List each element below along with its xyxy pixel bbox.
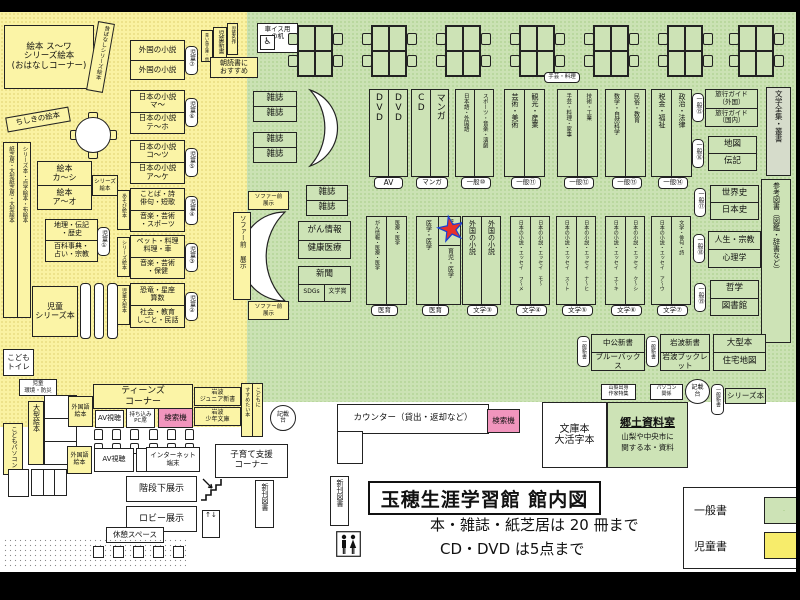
cd-dvd-limit-note: CD・DVD は5点まで bbox=[440, 538, 584, 559]
bungaku5-badge: 文学⑤ bbox=[562, 305, 593, 316]
ippan16-badge: 一般⑯ bbox=[692, 139, 704, 168]
bungaku7-badge: 文学⑦ bbox=[657, 305, 688, 316]
table-2 bbox=[362, 25, 416, 77]
kyukei-area bbox=[3, 538, 186, 568]
ippan-shinsho-badge-2: 一般新書 bbox=[646, 336, 659, 367]
shugei-tag: 手芸・料理 bbox=[544, 72, 580, 83]
jido4-badge: 児童④ bbox=[185, 196, 198, 225]
pc-kankei-tag: パソコン関係 bbox=[650, 384, 683, 400]
gaikokugo-ehon-1: 外国語絵本 bbox=[68, 396, 93, 427]
kosodate-corner: 子育て支援コーナー bbox=[215, 444, 288, 478]
kodomo-pc: こどもパソコン bbox=[3, 423, 23, 475]
letterbox-bottom bbox=[0, 572, 800, 600]
table-5 bbox=[584, 25, 638, 77]
round-table bbox=[70, 112, 116, 158]
legend-general-label: 一般書 bbox=[694, 502, 727, 518]
ippan18-badge: 一般⑱ bbox=[693, 234, 705, 263]
series-bon: シリーズ本 bbox=[725, 388, 766, 404]
manga-badge: マンガ bbox=[416, 177, 448, 189]
av-shicho-2: AV視聴 bbox=[94, 448, 134, 472]
ippan10-badge: 一般⑩ bbox=[461, 177, 491, 189]
mochikomi-pc: 持ち込みPC席 bbox=[126, 408, 155, 428]
chizu-denki: 地図伝記 bbox=[708, 136, 757, 171]
legend-row-children: 児童書 bbox=[694, 532, 800, 559]
sofa-tenji-1: ソファー前展示 bbox=[248, 191, 289, 210]
ippan14-badge: 一般⑭ bbox=[658, 177, 688, 189]
ogata-ehon-v: 大型絵本 bbox=[28, 401, 44, 465]
nihon-au-shelf: 日本の小説・エッセイ ア〜ウ文学・俳句・詩 bbox=[651, 216, 691, 305]
series-kamishibai-shelf: 紙芝居・大型紙芝居・大型絵本シリーズ本・点字絵本・布絵本 bbox=[3, 142, 31, 318]
kisaidai-1: 記載台 bbox=[685, 379, 710, 404]
geijutsu-kanko-shelf: 芸術・美術観光・産業 bbox=[504, 89, 545, 177]
sofa-tenji-v: ソファー前 展示 bbox=[233, 212, 251, 300]
series-ehon-2: シリーズ絵本 bbox=[117, 237, 130, 277]
shimbun-sdgs: 新聞SDGs文学賞 bbox=[298, 266, 351, 302]
shugei-gijutsu-shelf: 手芸・料理・家事技術・工業 bbox=[557, 89, 598, 177]
chuko-bluebacks: 中公新書ブルーバックス bbox=[591, 334, 645, 371]
nihon-fume-shelf: 日本の小説・エッセイ フ〜メ日本の小説・エッセイ モ〜 bbox=[510, 216, 550, 305]
shinkan-tosho-1: 新刊図書 bbox=[255, 480, 274, 528]
ogata-jutaku: 大型本住宅地図 bbox=[713, 334, 766, 371]
table-6 bbox=[658, 25, 712, 77]
iwanami-junior: 岩波ジュニア新書 bbox=[194, 387, 241, 406]
map-title: 玉穂生涯学習館 館内図 bbox=[368, 481, 601, 515]
gaikokugo-ehon-2: 外国語絵本 bbox=[67, 446, 92, 474]
slots-a bbox=[80, 283, 118, 339]
stairs-icon bbox=[199, 475, 223, 501]
jido1-badge: 児童① bbox=[97, 227, 110, 256]
shinkan-tosho-2: 新刊図書 bbox=[330, 476, 349, 526]
bungaku4-badge: 文学④ bbox=[516, 305, 547, 316]
sekaishi-nihonshi: 世界史日本史 bbox=[710, 185, 759, 220]
jido7-badge: 児童⑦ bbox=[185, 46, 198, 75]
table-4 bbox=[510, 25, 564, 77]
table-7 bbox=[729, 25, 783, 77]
elevator-icon: ↑↓ bbox=[202, 510, 220, 538]
jido5-badge: 児童⑤ bbox=[185, 148, 198, 177]
asobi-ehon: あそび絵本 bbox=[117, 190, 130, 230]
tetsugaku-toshokan: 哲学図書館 bbox=[710, 280, 759, 316]
jido6-badge: 児童⑥ bbox=[185, 98, 198, 127]
chiri-hyakka: 地理・伝記 ・歴史百科事典・ 占い・宗教 bbox=[45, 219, 98, 262]
iiku-badge-2: 医育 bbox=[422, 305, 449, 316]
gan-iryo-shelf: がん情報・医療・医学医療・医学 bbox=[366, 216, 407, 305]
chairs-row-1 bbox=[94, 429, 194, 439]
letterbox-top bbox=[0, 0, 800, 12]
asadokusho: 朝読書におすすめ bbox=[210, 57, 258, 78]
jido-series-box: 児童シリーズ本 bbox=[32, 286, 78, 337]
zeikin-seiji-shelf: 税金・福祉政治・法律 bbox=[651, 89, 692, 177]
sanko-tosho: 参考図書（図鑑・辞書など） bbox=[761, 179, 791, 343]
legend: 一般書 児童書 bbox=[683, 487, 800, 569]
kensakuki-counter: 検索機 bbox=[487, 409, 520, 433]
av-badge: AV bbox=[374, 177, 403, 189]
bunko-daikatsuji: 文庫本大活字本 bbox=[542, 402, 607, 468]
kensakuki-teens: 検索機 bbox=[158, 408, 193, 428]
yamanashi-tag: 山梨出身作家特集 bbox=[601, 384, 636, 400]
jido3-badge: 児童③ bbox=[185, 243, 198, 272]
jido2-badge: 児童② bbox=[185, 292, 198, 321]
nihon-eki-shelf: 日本の小説・エッセイ エ〜キ日本の小説・エッセイ ク〜シ bbox=[605, 216, 645, 305]
kisaidai-2: 記載台 bbox=[270, 405, 296, 431]
ippan15-badge: 一般⑮ bbox=[692, 93, 704, 122]
sofa-crescent-2 bbox=[249, 209, 289, 304]
kotoba-shi: ことば・詩 俳句・短歌音楽・芸術 ・スポーツ bbox=[130, 188, 185, 232]
ohanashi-corner: 絵本 ス〜ワシリーズ絵本(おはなしコーナー) bbox=[4, 25, 94, 89]
nihon-ko-shelf: 日本の小説 コ〜ツ日本の小説 ア〜ケ bbox=[130, 140, 185, 184]
jido-meisaku: 児童名作 bbox=[227, 23, 238, 55]
legend-children-label: 児童書 bbox=[694, 538, 727, 554]
kodomoni-susume: すすめたい本こどもに bbox=[241, 383, 263, 437]
gaikoku-jido-shelf: 外国の小説外国の小説 bbox=[130, 40, 185, 80]
sugaku-minzoku-shelf: 数学・自然科学民俗・教育 bbox=[605, 89, 646, 177]
gaikoku-shosetsu-shelf: 外国の小説外国の小説 bbox=[462, 216, 501, 305]
series-ehon-tag: シリーズ絵本 bbox=[92, 175, 118, 196]
iwanami-shinsho: 岩波新書岩波ブックレット bbox=[660, 334, 710, 371]
borrow-limit-note: 本・雑誌・紙芝居は 20 冊まで bbox=[430, 514, 639, 535]
table-1 bbox=[288, 25, 342, 77]
iiku-badge-1: 医育 bbox=[371, 305, 398, 316]
kaidan-tenji: 階段下展示 bbox=[126, 476, 197, 502]
teens-corner: ティーンズコーナー bbox=[93, 384, 193, 409]
wheelchair-icon: ♿ bbox=[260, 35, 275, 50]
ippan19-badge: 一般⑲ bbox=[694, 283, 706, 312]
wc-icon bbox=[336, 531, 361, 557]
kyodo-shiryoshitsu: 郷土資料室山梨や中央市に関する本・資料 bbox=[607, 402, 688, 468]
zasshi-2: 雑誌雑誌 bbox=[253, 132, 297, 163]
ehon-ka-shi: 絵本 カ〜シ絵本 ア〜オ bbox=[37, 161, 92, 210]
kodomo-toilet: こどもトイレ bbox=[3, 349, 34, 376]
iwanami-shonen: 岩波少年文庫 bbox=[194, 407, 241, 426]
pet-ryori: ペット・料理 料理・車音楽・芸術 ・保健 bbox=[130, 235, 185, 279]
sofa-tenji-2: ソファー前展示 bbox=[248, 301, 289, 320]
library-floor-map: 絵本 ス〜ワシリーズ絵本(おはなしコーナー)昔ばなしシリーズ絵本ちしきの絵本紙芝… bbox=[0, 0, 800, 600]
counter: カウンター（貸出・返却など） bbox=[337, 404, 487, 462]
table-3 bbox=[436, 25, 490, 77]
av-shicho-1: AV視聴 bbox=[95, 410, 124, 428]
dvd-shelf: DVDDVD bbox=[369, 89, 408, 177]
ippan12-badge: 一般⑫ bbox=[564, 177, 594, 189]
zasshi-1: 雑誌雑誌 bbox=[253, 91, 297, 122]
ryoko-guide: 旅行ガイド （外国）旅行ガイド （国内） bbox=[705, 89, 758, 127]
legend-row-general: 一般書 bbox=[694, 497, 800, 524]
legend-children-swatch bbox=[764, 532, 800, 559]
bungaku3-badge: 文学③ bbox=[467, 305, 498, 316]
ippan11-badge: 一般⑪ bbox=[511, 177, 541, 189]
bungaku6-badge: 文学⑥ bbox=[611, 305, 642, 316]
kyoryu-sansu: 恐竜・星座 算数社会・教育 しごと・民話 bbox=[130, 283, 185, 328]
jinsei-shinri: 人生・宗教心理学 bbox=[708, 231, 761, 268]
ippan13-badge: 一般⑬ bbox=[612, 177, 642, 189]
legend-general-swatch bbox=[764, 497, 800, 524]
letterbox-right bbox=[796, 12, 800, 572]
ippan17-badge: 一般⑰ bbox=[694, 188, 706, 217]
sofa-crescent-1 bbox=[306, 87, 346, 169]
bungaku-zenshu: 文学全集・叢書 bbox=[766, 87, 791, 176]
cd-manga-shelf: CDマンガ bbox=[411, 89, 449, 177]
jido-ogata-bon: 児童大型本 bbox=[117, 285, 130, 325]
nihon-suto-shelf: 日本の小説・エッセイ ス〜ト日本の小説・エッセイ ナ〜ヒ bbox=[556, 216, 596, 305]
ippan-shinsho-badge-1: 一般新書 bbox=[577, 336, 590, 367]
zasshi-3: 雑誌雑誌 bbox=[306, 185, 348, 216]
jido-kankyo-bosai: 児童環境・防災 bbox=[19, 379, 57, 396]
sofa-a bbox=[8, 469, 29, 497]
ippan-shinsho-badge-3: 一般新書 bbox=[711, 384, 724, 415]
nihon-ma-shelf: 日本の小説 マ〜日本の小説 テ〜ホ bbox=[130, 90, 185, 134]
sofa-b bbox=[31, 469, 67, 496]
gan-kenko: がん情報健康医療 bbox=[298, 221, 351, 259]
nihongo-sports-shelf: 日本語・外国語スポーツ・音楽・演劇 bbox=[455, 89, 494, 177]
internet-tanmatsu: インターネット端末 bbox=[146, 447, 200, 472]
